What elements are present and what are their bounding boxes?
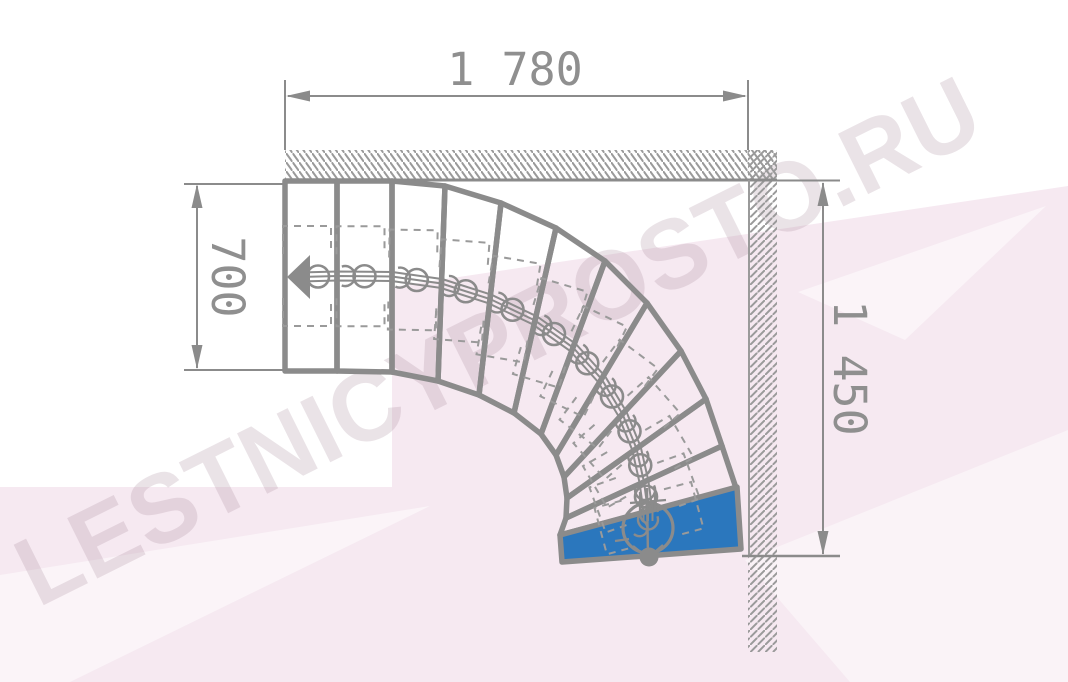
tread-bracket-upper <box>439 239 489 271</box>
dim-arrow-left-top <box>192 184 203 208</box>
entry-direction-arrow-icon <box>287 255 310 299</box>
tread-bracket-upper <box>389 230 437 259</box>
dim-arrow-top-left <box>286 91 310 102</box>
right-wall-hatch <box>748 150 777 652</box>
post-base-dot <box>640 548 659 567</box>
dimension-label-left: 700 <box>201 236 254 317</box>
dim-arrow-left-bottom <box>192 345 203 369</box>
staircase-plan-drawing: LESTNICYPROSTO.RU 1 780 700 1 450 <box>0 0 1068 682</box>
top-wall-hatch <box>285 150 777 180</box>
tread-bracket-upper <box>283 226 331 254</box>
dimension-label-top: 1 780 <box>447 43 582 96</box>
dimension-label-right: 1 450 <box>823 300 876 435</box>
tread-bracket-upper <box>337 226 385 254</box>
tread-bracket-lower <box>283 298 331 326</box>
plan-svg: LESTNICYPROSTO.RU 1 780 700 1 450 <box>0 0 1068 682</box>
tread-bracket-lower <box>337 298 385 326</box>
dim-arrow-top-right <box>723 91 747 102</box>
